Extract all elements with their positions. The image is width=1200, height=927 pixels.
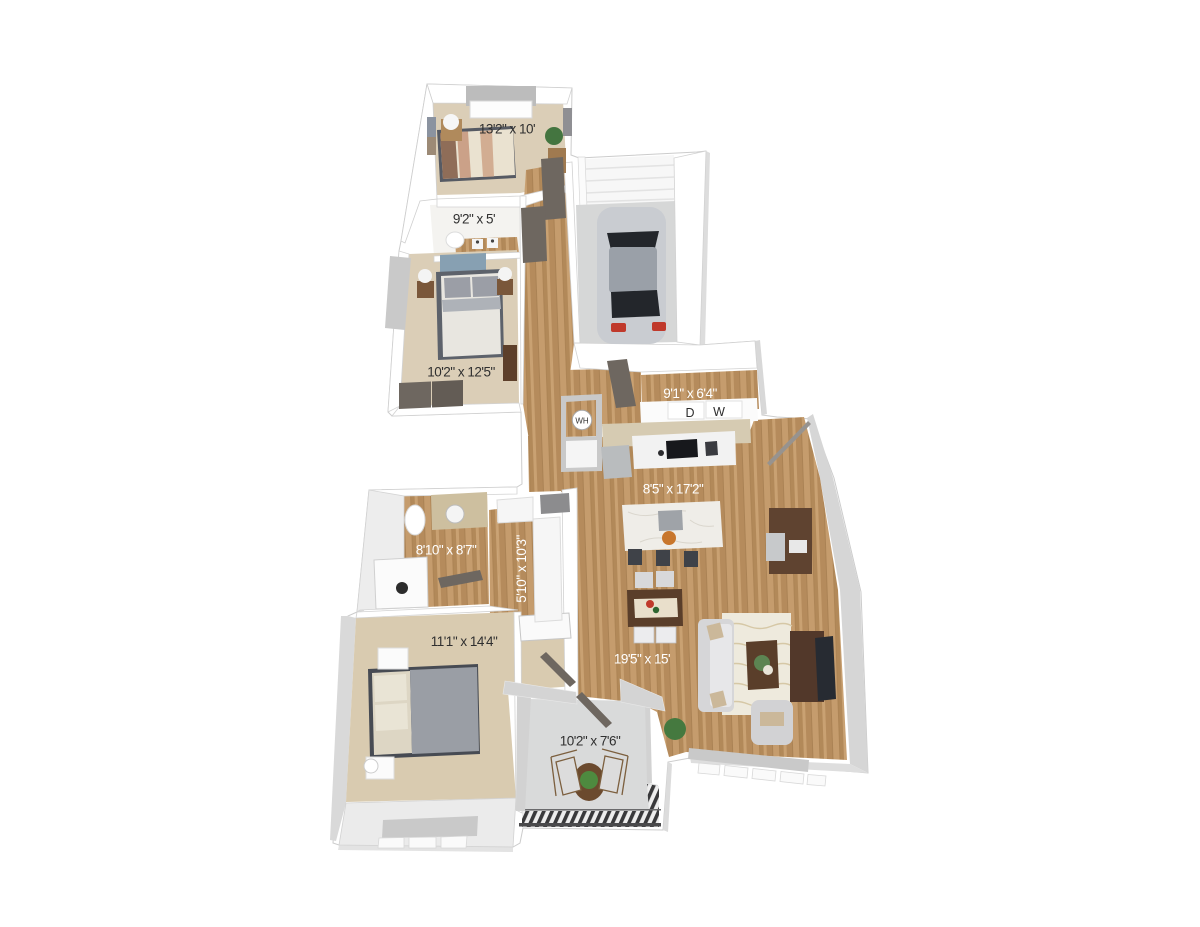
svg-text:WH: WH [575, 417, 589, 426]
svg-text:10'2" x 12'5": 10'2" x 12'5" [427, 365, 495, 380]
svg-text:13'2" x 10': 13'2" x 10' [479, 122, 535, 137]
svg-text:11'1" x 14'4": 11'1" x 14'4" [431, 634, 498, 649]
svg-text:8'10" x 8'7": 8'10" x 8'7" [416, 543, 477, 558]
svg-text:19'5" x 15': 19'5" x 15' [614, 652, 670, 667]
svg-text:8'5" x 17'2": 8'5" x 17'2" [643, 482, 704, 497]
svg-text:W: W [713, 405, 725, 419]
svg-text:9'1" x 6'4": 9'1" x 6'4" [663, 386, 717, 401]
svg-text:10'2" x 7'6": 10'2" x 7'6" [560, 734, 621, 749]
svg-text:5'10" x 10'3": 5'10" x 10'3" [514, 535, 529, 603]
svg-text:9'2" x 5': 9'2" x 5' [453, 212, 495, 227]
svg-text:D: D [685, 406, 694, 420]
